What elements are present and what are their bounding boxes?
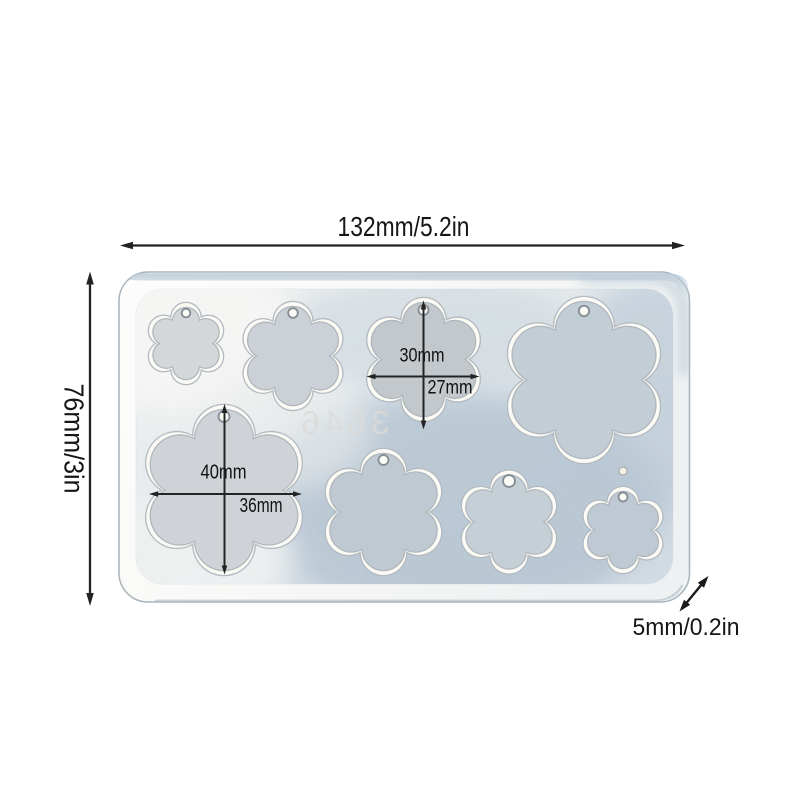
svg-text:40mm: 40mm [201, 461, 247, 484]
svg-text:3646: 3646 [296, 404, 389, 441]
svg-text:5mm/0.2in: 5mm/0.2in [633, 614, 740, 641]
svg-text:36mm: 36mm [240, 494, 283, 517]
svg-text:132mm/5.2in: 132mm/5.2in [338, 211, 470, 242]
svg-text:30mm: 30mm [400, 345, 445, 367]
svg-text:27mm: 27mm [428, 377, 473, 399]
svg-text:76mm/3in: 76mm/3in [59, 384, 90, 494]
